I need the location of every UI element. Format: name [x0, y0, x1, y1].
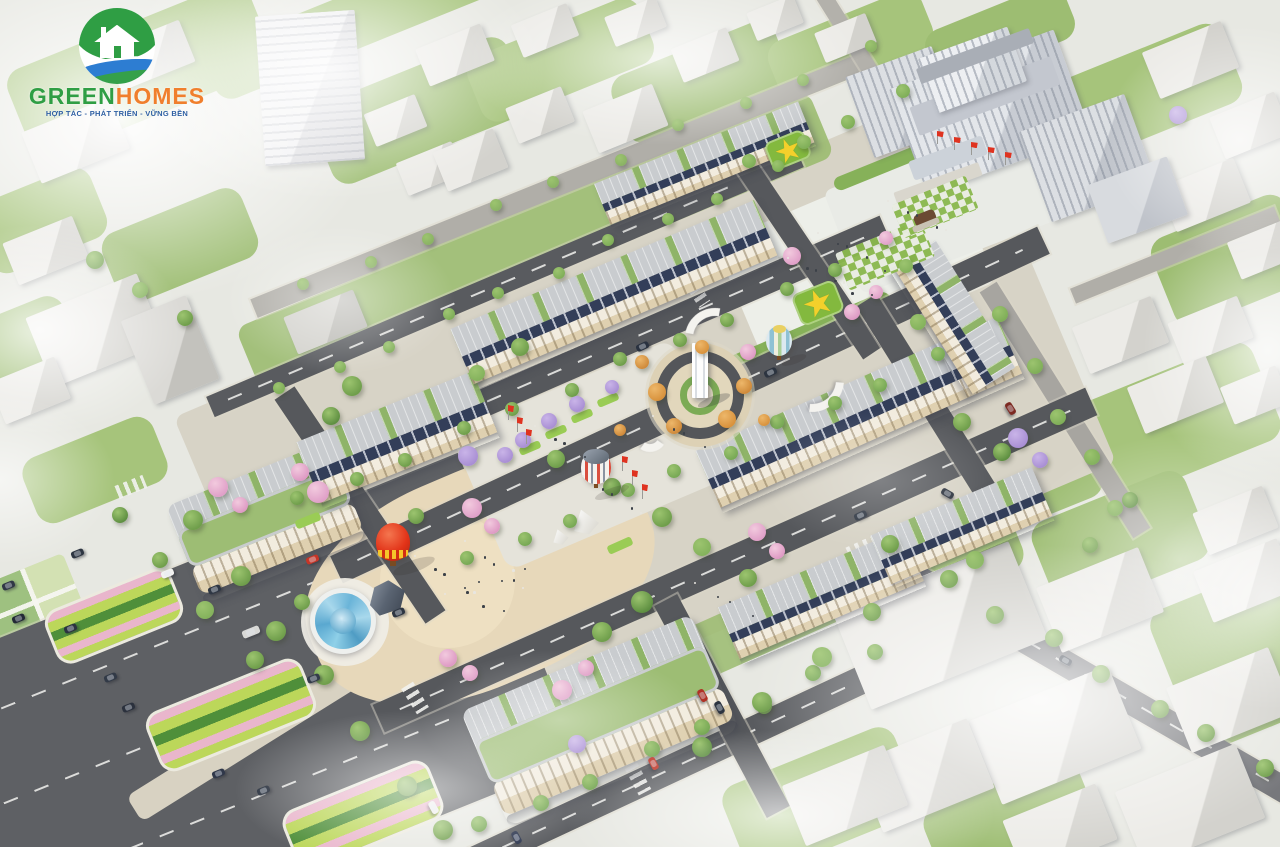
- street-tree: [290, 491, 304, 505]
- logo-circle: [79, 8, 155, 84]
- street-tree: [673, 333, 687, 347]
- tree: [132, 282, 148, 298]
- pedestrian: [434, 568, 437, 571]
- street-tree: [992, 306, 1008, 322]
- street-tree: [931, 347, 945, 361]
- tree: [692, 737, 712, 757]
- street-tree: [553, 267, 565, 279]
- ground-lawn: [17, 411, 173, 528]
- pedestrian: [563, 442, 566, 445]
- tree: [177, 310, 193, 326]
- pedestrian: [493, 563, 496, 566]
- pedestrian: [851, 292, 854, 295]
- red-flag: [967, 142, 976, 154]
- street-tree: [1151, 700, 1169, 718]
- street-tree: [772, 160, 784, 172]
- band: [378, 550, 408, 559]
- cartop: [66, 625, 74, 632]
- pedestrian: [482, 605, 485, 608]
- red-flag: [504, 405, 512, 419]
- brand-tagline: HỢP TÁC - PHÁT TRIỂN - VỮNG BỀN: [10, 109, 224, 118]
- street-tree: [231, 566, 251, 586]
- tree: [469, 365, 485, 381]
- fountain: [310, 588, 376, 654]
- cherry-blossom-tree: [208, 477, 228, 497]
- street-tree: [740, 97, 752, 109]
- street-tree: [873, 378, 887, 392]
- tree: [294, 594, 310, 610]
- jacaranda-tree: [458, 446, 478, 466]
- street-tree: [365, 256, 377, 268]
- tree: [547, 450, 565, 468]
- jacaranda-tree: [1008, 428, 1028, 448]
- cherry-blossom-tree: [291, 463, 309, 481]
- tree: [592, 622, 612, 642]
- street-tree: [471, 816, 487, 832]
- street-tree: [1256, 759, 1274, 777]
- street-tree: [602, 234, 614, 246]
- tree: [993, 443, 1011, 461]
- jacaranda-tree: [569, 396, 585, 412]
- tree: [408, 508, 424, 524]
- street-tree: [672, 119, 684, 131]
- cartop: [1061, 656, 1069, 663]
- cherry-blossom-tree: [578, 660, 594, 676]
- street-tree: [565, 383, 579, 397]
- cap: [583, 449, 608, 463]
- striped-hot-air-balloon: [581, 450, 611, 484]
- red-flag: [638, 484, 646, 498]
- cherry-blossom-tree: [879, 231, 893, 245]
- tree: [196, 601, 214, 619]
- street-tree: [422, 233, 434, 245]
- autumn-tree: [648, 383, 666, 401]
- red-flag: [950, 137, 959, 149]
- cartop: [766, 369, 774, 376]
- cartop: [394, 609, 402, 616]
- street-tree: [867, 644, 883, 660]
- cartop: [106, 674, 114, 681]
- street-tree: [805, 665, 821, 681]
- pedestrian: [512, 569, 515, 572]
- city-block-building: [1071, 296, 1169, 374]
- aerial-masterplan-render: ★★ GREENHOMES HỢP TÁC - PHÁT TRIỂN - VỮN…: [0, 0, 1280, 847]
- tree: [511, 338, 529, 356]
- cherry-blossom-tree: [783, 247, 801, 265]
- tree: [652, 507, 672, 527]
- street-tree: [828, 263, 842, 277]
- street-tree: [433, 820, 453, 840]
- street-tree: [183, 510, 203, 530]
- autumn-tree: [736, 378, 752, 394]
- pedestrian: [806, 267, 809, 270]
- red-hot-air-balloon: [376, 523, 410, 561]
- cartop: [309, 675, 317, 682]
- starglyph: ★: [797, 282, 839, 324]
- red-flag: [513, 417, 521, 431]
- cartop: [429, 803, 436, 811]
- street-tree: [613, 352, 627, 366]
- tree: [863, 603, 881, 621]
- cherry-blossom-tree: [869, 285, 883, 299]
- red-flag: [618, 456, 626, 470]
- street-tree: [742, 154, 756, 168]
- brand-name: GREENHOMES: [10, 85, 224, 108]
- blue-hot-air-balloon: [766, 326, 792, 356]
- street-tree: [881, 535, 899, 553]
- cartop: [308, 556, 316, 563]
- pedestrian: [473, 591, 476, 594]
- jacaranda-tree: [541, 413, 557, 429]
- pedestrian: [936, 226, 939, 229]
- cartop: [4, 582, 12, 589]
- jacaranda-tree: [605, 380, 619, 394]
- tree: [899, 259, 913, 273]
- pedestrian: [834, 280, 837, 283]
- cherry-blossom-tree: [844, 304, 860, 320]
- cherry-blossom-tree: [462, 665, 478, 681]
- cartop: [943, 489, 951, 496]
- jacaranda-tree: [568, 735, 586, 753]
- street-tree: [350, 721, 370, 741]
- tree: [752, 692, 772, 712]
- autumn-tree: [666, 418, 682, 434]
- cherry-blossom-tree: [484, 518, 500, 534]
- red-flag: [522, 429, 530, 443]
- cartop: [638, 343, 646, 350]
- cartop: [715, 703, 722, 711]
- cartop: [73, 550, 81, 557]
- pedestrian: [815, 269, 818, 272]
- cartop: [1006, 404, 1014, 412]
- cartop: [512, 833, 519, 841]
- street-tree: [841, 115, 855, 129]
- cartop: [698, 691, 705, 699]
- basket: [777, 356, 781, 360]
- car: [70, 547, 85, 558]
- cartop: [259, 787, 267, 794]
- street-tree: [383, 341, 395, 353]
- street-tree: [533, 795, 549, 811]
- tree: [322, 407, 340, 425]
- street-tree: [1107, 500, 1123, 516]
- street-tree: [797, 74, 809, 86]
- autumn-tree: [695, 340, 709, 354]
- tree: [953, 413, 971, 431]
- street-tree: [460, 551, 474, 565]
- street-tree: [797, 135, 811, 149]
- street-tree: [770, 415, 784, 429]
- red-flag: [984, 147, 993, 159]
- tree: [246, 651, 264, 669]
- tree: [1082, 537, 1098, 553]
- street-tree: [724, 446, 738, 460]
- tree: [693, 538, 711, 556]
- cherry-blossom-tree: [462, 498, 482, 518]
- house-door: [114, 46, 120, 58]
- pedestrian: [501, 580, 504, 583]
- street-tree: [1197, 724, 1215, 742]
- cherry-blossom-tree: [769, 543, 785, 559]
- cherry-blossom-tree: [232, 497, 248, 513]
- brand-name-orange: HOMES: [116, 83, 205, 109]
- pedestrian: [466, 591, 469, 594]
- street-tree: [518, 532, 532, 546]
- cartop: [856, 512, 864, 519]
- street-tree: [563, 514, 577, 528]
- tree: [966, 551, 984, 569]
- pedestrian: [673, 428, 676, 431]
- autumn-tree: [635, 355, 649, 369]
- tree: [86, 251, 104, 269]
- jacaranda-tree: [1169, 106, 1187, 124]
- red-flag: [1001, 152, 1010, 164]
- street-tree: [398, 453, 412, 467]
- pedestrian: [916, 214, 919, 217]
- pedestrian: [631, 507, 634, 510]
- autumn-tree: [758, 414, 770, 426]
- jacaranda-tree: [1032, 452, 1048, 468]
- street-tree: [1084, 449, 1100, 465]
- cartop: [210, 586, 218, 593]
- street-tree: [711, 193, 723, 205]
- cherry-blossom-tree: [552, 680, 572, 700]
- tree: [342, 376, 362, 396]
- pedestrian: [554, 438, 557, 441]
- street-tree: [490, 199, 502, 211]
- tree: [631, 591, 653, 613]
- street-tree: [896, 84, 910, 98]
- street-tree: [547, 176, 559, 188]
- cartop: [163, 570, 171, 577]
- cap: [773, 325, 786, 333]
- pedestrian: [611, 493, 614, 496]
- pedestrian: [484, 556, 487, 559]
- brand-name-green: GREEN: [29, 83, 116, 109]
- greenhomes-logo: GREENHOMES HỢP TÁC - PHÁT TRIỂN - VỮNG B…: [10, 4, 224, 118]
- cherry-blossom-tree: [740, 344, 756, 360]
- jacaranda-tree: [497, 447, 513, 463]
- street-tree: [350, 472, 364, 486]
- autumn-tree: [614, 424, 626, 436]
- tree: [910, 314, 926, 330]
- cartop: [124, 704, 132, 711]
- house-icon: [94, 25, 140, 58]
- cherry-blossom-tree: [307, 481, 329, 503]
- cherry-blossom-tree: [748, 523, 766, 541]
- cartop: [214, 770, 222, 777]
- cartop: [649, 759, 656, 767]
- street-tree: [1027, 358, 1043, 374]
- basket: [390, 561, 395, 566]
- cartop: [14, 615, 22, 622]
- tree: [1122, 492, 1138, 508]
- highrise-tower: [255, 10, 365, 167]
- tree: [152, 552, 168, 568]
- street-tree: [667, 464, 681, 478]
- red-flag: [628, 470, 636, 484]
- street-tree: [615, 154, 627, 166]
- pedestrian: [443, 573, 446, 576]
- autumn-tree: [718, 410, 736, 428]
- greenhomes-logo-icon: [79, 8, 155, 84]
- street-tree: [1092, 665, 1110, 683]
- red-flag: [933, 131, 942, 143]
- street-tree: [273, 382, 285, 394]
- street-tree: [297, 278, 309, 290]
- tree: [112, 507, 128, 523]
- street-tree: [1050, 409, 1066, 425]
- tree: [812, 647, 832, 667]
- basket: [594, 484, 599, 488]
- street-tree: [828, 396, 842, 410]
- street-tree: [644, 741, 660, 757]
- street-tree: [865, 40, 877, 52]
- cherry-blossom-tree: [439, 649, 457, 667]
- tree: [739, 569, 757, 587]
